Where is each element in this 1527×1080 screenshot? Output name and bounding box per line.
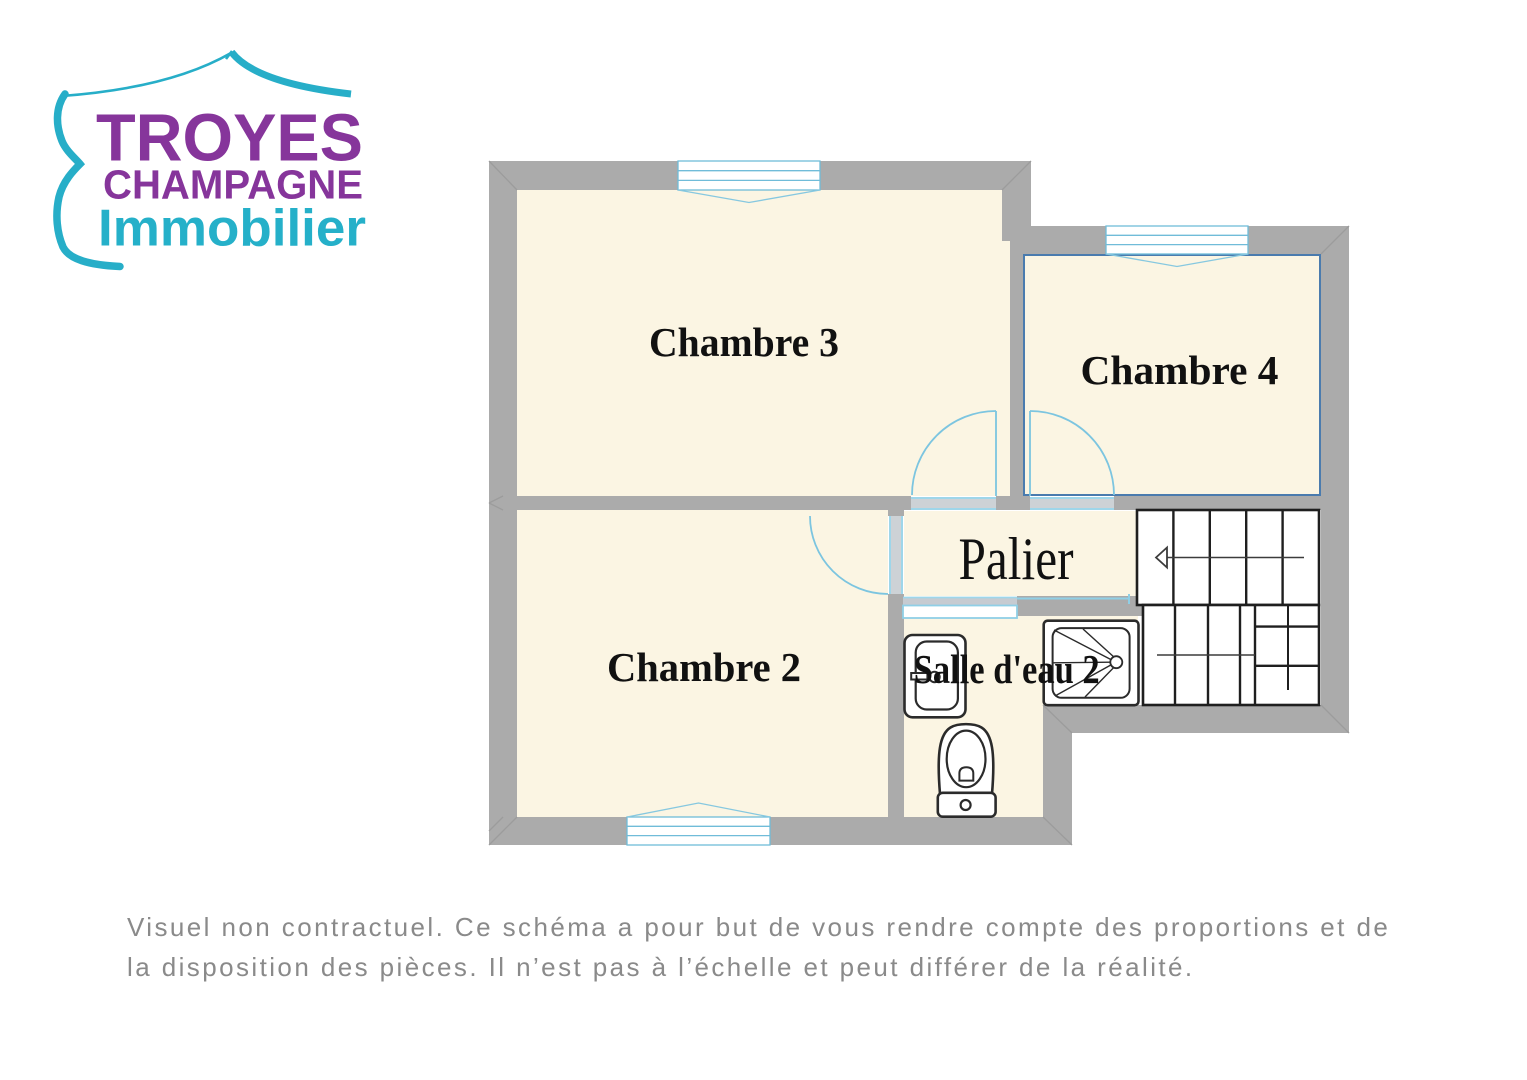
- svg-text:Chambre 2: Chambre 2: [607, 644, 801, 690]
- svg-text:Visuel non contractuel. Ce sch: Visuel non contractuel. Ce schéma a pour…: [127, 912, 1390, 942]
- svg-text:Salle d'eau 2: Salle d'eau 2: [914, 646, 1100, 692]
- svg-text:Chambre 3: Chambre 3: [649, 319, 839, 365]
- svg-text:Palier: Palier: [959, 526, 1074, 592]
- svg-text:Chambre 4: Chambre 4: [1081, 347, 1279, 393]
- svg-text:la disposition des pièces. Il: la disposition des pièces. Il n’est pas …: [127, 952, 1195, 982]
- svg-text:Immobilier: Immobilier: [98, 200, 366, 258]
